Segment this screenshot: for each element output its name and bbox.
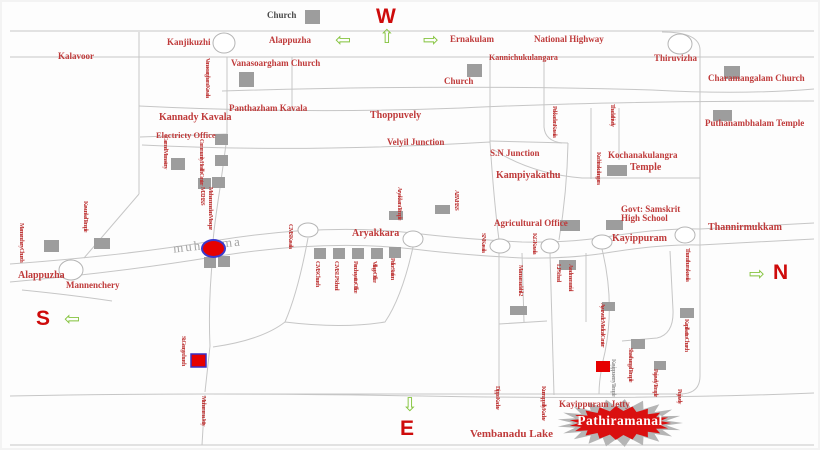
label-velyil-junction: Velyil Junction xyxy=(387,138,444,147)
label-thoppuvely: Thoppuvely xyxy=(370,111,421,122)
label-agricultural-office: Agricultural Office xyxy=(494,219,568,228)
label-dippo-kadav: Dippo Kadav xyxy=(493,386,501,416)
label-mohammedan-mosque: Mohammedan Mosque M.T.H.S.S xyxy=(198,187,214,243)
label-thuruthum-kavala: Thuruthum kavala xyxy=(683,248,691,300)
label-kayippuram-jetty: Kayippuram Jetty xyxy=(559,400,630,409)
label-mannamadahil: Mannamadahil-2 xyxy=(516,265,524,295)
label-aryakkara-temple: Aryakkara Temple xyxy=(395,187,403,237)
label-kayippuram: Kayippuram xyxy=(612,234,667,245)
label-kannady-kavala: Kannady Kavala xyxy=(159,113,232,124)
label-vanasoargham-kavala: Vanasoargham Kavala xyxy=(203,58,211,124)
label-kochanakulangra-temple: Temple xyxy=(630,163,661,174)
label-ernakulam: Ernakulam xyxy=(450,35,494,44)
compass-south: S xyxy=(36,308,50,329)
label-sn-kavala: S.N Kavala xyxy=(479,233,487,252)
label-church-mid: Church xyxy=(444,77,473,86)
label-sn-junction: S.N Junction xyxy=(490,149,540,158)
label-cms-kavala: C.M.S Kavala xyxy=(286,224,294,248)
label-shasthangal-temple: Shasthangal Temple xyxy=(626,348,634,408)
label-azad-memorial: Azad memorial xyxy=(566,264,574,291)
label-kurruppolly-kadav: Kurruppolly Kadav xyxy=(539,386,547,444)
label-lp-school: L.P School xyxy=(554,264,562,281)
label-kanjikuzhi: Kanjikuzhi xyxy=(167,38,211,47)
label-police-station: Police Station xyxy=(388,258,396,279)
label-kavunkal-temple: Kavunkal Temple xyxy=(81,201,89,247)
label-pujavely: Pujavely xyxy=(675,389,683,403)
label-alappuzha-top: Alappuzha xyxy=(269,36,311,45)
kayippuserry-temple-marker xyxy=(596,361,610,372)
label-puthanambhalam-temple: Puthanambhalam Temple xyxy=(705,119,804,128)
arrow-up-icon: ⇧ xyxy=(379,28,395,47)
label-mannenchery: Mannenchery xyxy=(66,281,120,290)
label-national-highway: National Highway xyxy=(534,35,604,44)
st-george-church-marker xyxy=(191,354,206,367)
compass-west: W xyxy=(376,6,396,27)
label-pathiramanal: Pathiramanal xyxy=(568,413,672,429)
label-aryakkara: Aryakkara xyxy=(352,229,399,240)
label-kapilkattu-church: Kapilkattu Church xyxy=(682,319,690,351)
label-kalavoor: Kalavoor xyxy=(58,52,94,61)
label-village-office: Village Office xyxy=(370,261,378,282)
compass-north: N xyxy=(773,262,788,283)
label-govt-samskrit: Govt: Samskrit High School xyxy=(621,205,689,224)
map-canvas xyxy=(2,2,820,450)
label-pokkadan-kavala: Pokkadan Kavala xyxy=(550,106,558,137)
label-cms-church: C.M.S Church xyxy=(313,261,321,286)
label-carmel-monastery: Carmel Monastery xyxy=(161,136,169,168)
label-panthazham-kavala: Panthazham Kavala xyxy=(229,104,307,113)
label-kochanakulangra: Kochanakulangra xyxy=(608,151,678,160)
label-alappuzha-left: Alappuzha xyxy=(18,271,65,282)
label-st-george-church: St. George church xyxy=(179,336,187,365)
arrow-right-icon: ⇨ xyxy=(423,31,439,50)
label-cms-lp-school: C.M.S LP School xyxy=(332,261,340,290)
arrow-down-icon: ⇩ xyxy=(402,396,418,415)
arrow-left-icon: ⇦ xyxy=(335,31,351,50)
label-kochinakulangara: Kochinakulangara xyxy=(594,152,602,184)
muhamma-junction-marker xyxy=(201,239,226,258)
map-screenshot: W S N E ⇦ ⇧ ⇨ ⇦ ⇨ ⇩ Church Kanjikuzhi Al… xyxy=(0,0,820,450)
label-church-top: Church xyxy=(267,11,296,20)
label-pajavely-temple: Pajavely Temple xyxy=(651,369,659,415)
arrow-right-north-icon: ⇨ xyxy=(749,265,765,284)
label-thiruvizha: Thiruvizha xyxy=(654,54,697,63)
building-markers xyxy=(44,10,740,370)
label-panchayattu-office: Panchayattu Office xyxy=(351,261,359,293)
label-community-health-center: Community Health Center xyxy=(197,139,205,189)
label-abv-hss: A.B.V.H.S.S xyxy=(452,190,460,210)
compass-east: E xyxy=(400,418,414,439)
label-vanasoargham-church: Vanasoargham Church xyxy=(231,59,320,68)
label-kg-kavala: K.G Kavala xyxy=(530,233,538,254)
arrow-left-south-icon: ⇦ xyxy=(64,310,80,329)
label-mannenchery-church: Mannenchery Church xyxy=(17,223,25,283)
label-ayurvedic-medical-center: Ayurvedic Medical Center xyxy=(598,303,606,353)
label-muhamma-jetty: Muhamma Jetty xyxy=(199,396,207,426)
label-kayippuserry-temple: Kayippuserry Temple xyxy=(609,359,617,409)
label-kampiyakathu: Kampiyakathu xyxy=(496,171,560,182)
label-thadathively: Thadathively xyxy=(608,104,616,126)
label-thannirmukkam: Thannirmukkam xyxy=(708,223,782,234)
label-kannichukulangara: Kannichukulangara xyxy=(489,54,558,62)
label-charamangalam-church: Charamangalam Church xyxy=(708,74,805,83)
